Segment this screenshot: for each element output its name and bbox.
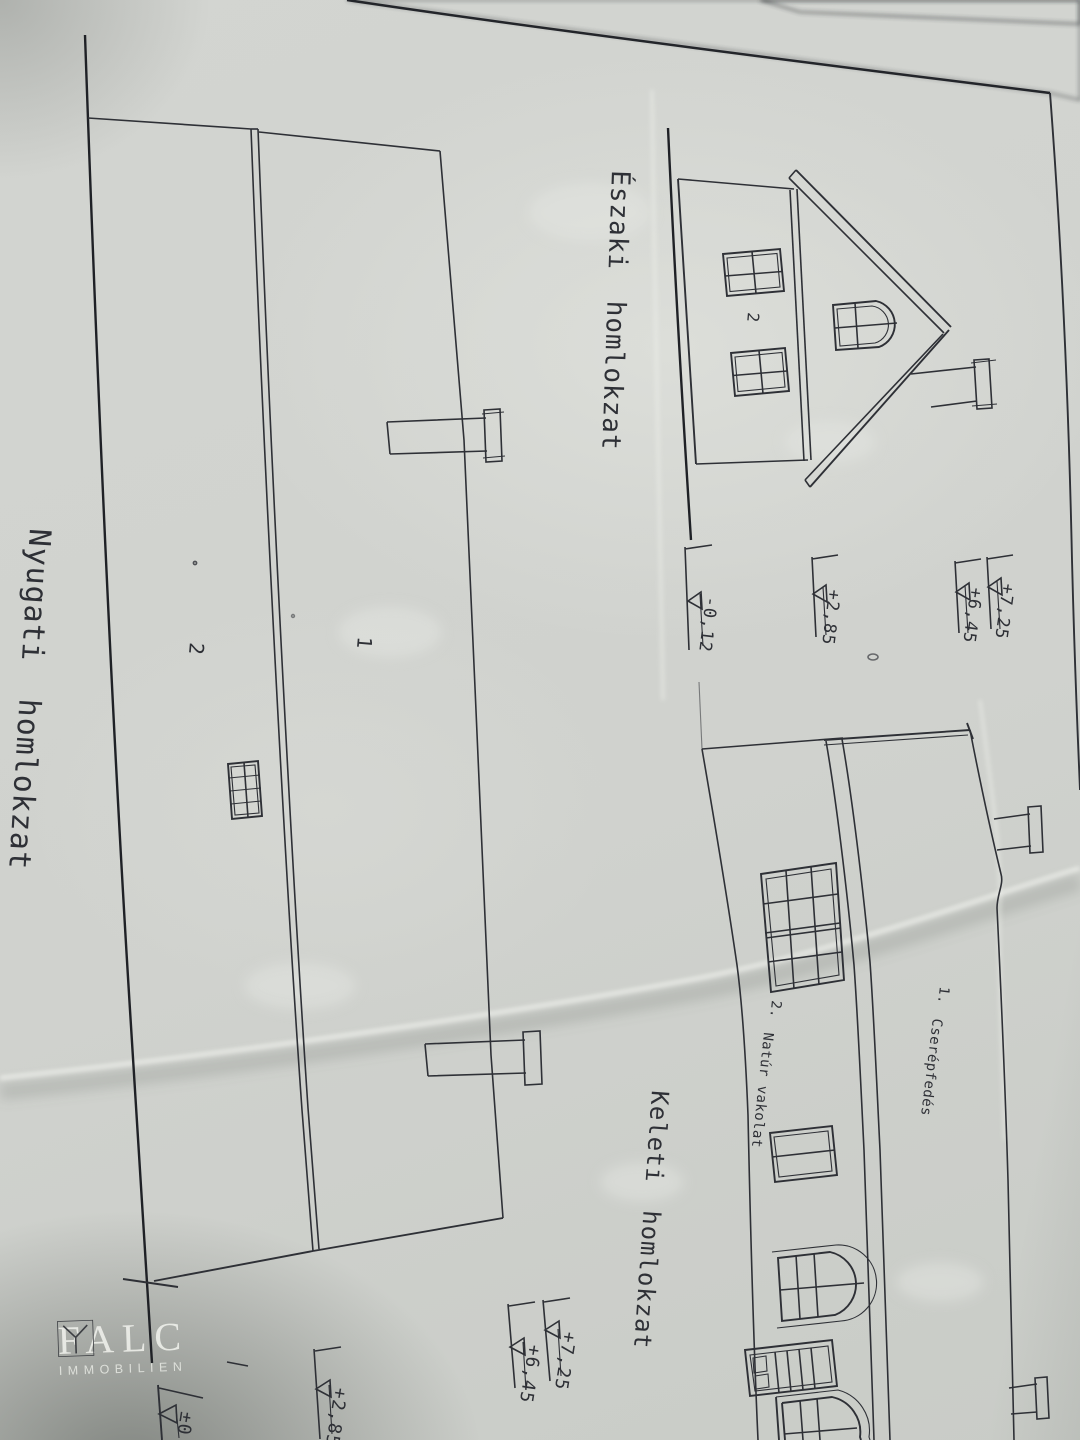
- level-marker-eave: +6,45: [955, 559, 986, 645]
- keleti-door: [745, 1340, 837, 1396]
- level-marker-ridge: +7,25: [543, 1298, 580, 1392]
- legend-item-1-number: 1.: [934, 986, 952, 1006]
- nyugati-building-outline: [88, 118, 503, 1281]
- sheet-border-right: [1050, 93, 1080, 790]
- keleti-arched-window-2: [776, 1390, 870, 1440]
- level-marker-terrain: -0,12: [685, 545, 721, 654]
- nyugati-section-label-right: 1: [352, 636, 377, 651]
- level-marker-ground: ±0: [158, 1385, 203, 1440]
- keleti-eave-edge-left: [702, 749, 758, 1440]
- legend-item-1-label: Cserépfedés: [917, 1018, 945, 1117]
- level-marker-floor: +2,85: [812, 555, 844, 647]
- eszaki-window-upper: [723, 249, 784, 296]
- level-marker-ridge: +7,25: [987, 555, 1018, 641]
- keleti-wall-roof-junction: [826, 739, 890, 1440]
- nyugati-section-label-left: 2: [184, 642, 209, 657]
- keleti-small-window: [770, 1126, 837, 1182]
- level-value: +2,85: [817, 588, 844, 646]
- nyugati-chimney-upper: [387, 409, 505, 462]
- eszaki-window-lower: [731, 348, 789, 396]
- level-value: ±0: [172, 1410, 196, 1437]
- level-markers-middle: -0,12 +2,85 +6,45 +7,25: [685, 545, 1018, 654]
- keleti-chimney-upper: [994, 806, 1043, 853]
- level-value: -0,12: [694, 595, 721, 653]
- falc-logo-icon: [57, 1320, 94, 1357]
- blueprint-photo: 2 1 Nyugati homlokzat: [0, 0, 1080, 1440]
- eszaki-wall-label: 2: [743, 312, 763, 324]
- nyugati-elevation-drawing: 2 1: [85, 35, 542, 1363]
- eszaki-arched-gable-window: [833, 301, 897, 350]
- keleti-legend: 1. Cserépfedés 2. Natúr vakolat: [748, 986, 952, 1149]
- falc-watermark: FALC IMMOBILIEN: [57, 1315, 234, 1378]
- keleti-arched-window-1: [772, 1245, 877, 1328]
- eszaki-chimney: [911, 359, 997, 409]
- nyugati-ground-line: [85, 35, 152, 1363]
- keleti-chimney-lower: [1009, 1377, 1049, 1419]
- paper-creases: [0, 0, 1080, 1302]
- legend-item-2-label: Natúr vakolat: [748, 1032, 776, 1149]
- eszaki-elevation-drawing: 2: [668, 128, 997, 540]
- keleti-eave-top: [702, 738, 843, 749]
- title-nyugati: Nyugati homlokzat: [1, 528, 57, 872]
- level-value: +7,25: [550, 1330, 580, 1392]
- nyugati-ground-end-tick: [123, 1279, 178, 1287]
- elevation-drawing-sheet: 2 1 Nyugati homlokzat: [0, 0, 1080, 1440]
- nyugati-window: [228, 761, 262, 819]
- level-marker-eave: +6,45: [508, 1302, 545, 1405]
- title-keleti: Keleti homlokzat: [628, 1090, 674, 1351]
- level-marker-floor: +2,85: [314, 1347, 351, 1440]
- sheet-border: [347, 0, 1080, 790]
- keleti-ridge-top: [824, 730, 970, 740]
- keleti-elevation-drawing: 1. Cserépfedés 2. Natúr vakolat: [699, 682, 1049, 1440]
- legend-item-2-number: 2.: [766, 1000, 784, 1019]
- keleti-roof-edge-right: [970, 730, 1014, 1440]
